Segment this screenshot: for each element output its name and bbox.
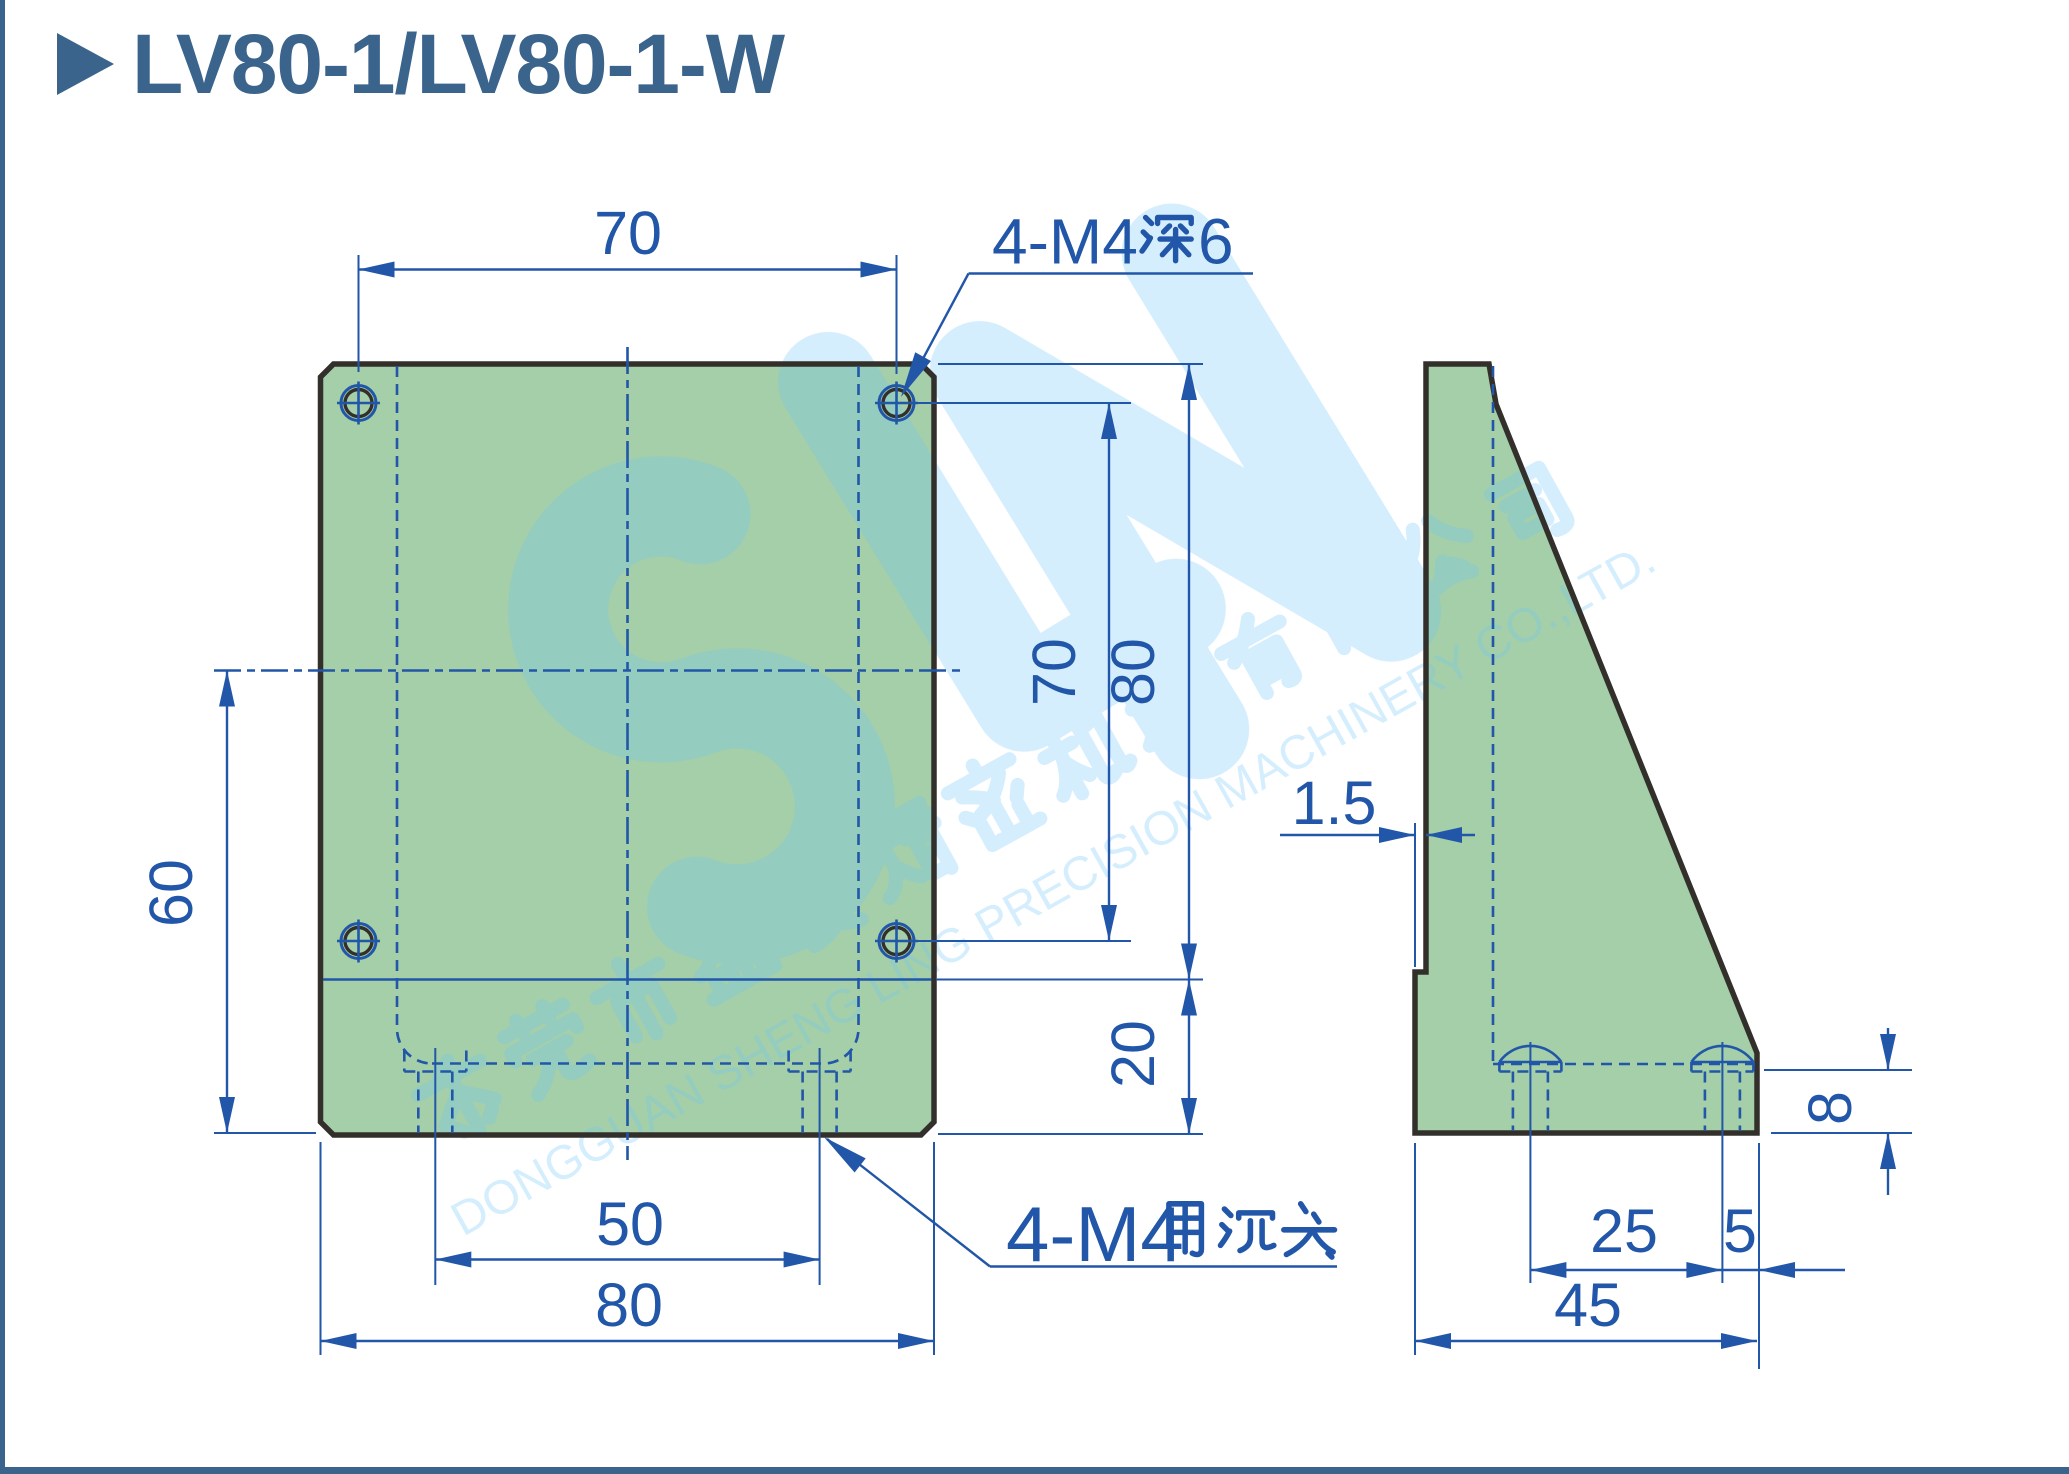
svg-text:4-M4: 4-M4 — [992, 206, 1138, 278]
svg-text:80: 80 — [595, 1271, 663, 1339]
svg-text:4-M4: 4-M4 — [1006, 1190, 1184, 1278]
svg-text:LV80-1/LV80-1-W: LV80-1/LV80-1-W — [132, 17, 786, 111]
svg-text:50: 50 — [596, 1190, 664, 1258]
svg-text:70: 70 — [594, 199, 662, 267]
svg-text:60: 60 — [137, 859, 205, 927]
svg-text:25: 25 — [1590, 1197, 1658, 1265]
svg-text:20: 20 — [1099, 1020, 1167, 1088]
svg-text:8: 8 — [1796, 1091, 1864, 1125]
svg-text:80: 80 — [1099, 638, 1167, 706]
svg-text:6: 6 — [1198, 206, 1234, 278]
svg-text:5: 5 — [1723, 1197, 1757, 1265]
svg-text:45: 45 — [1554, 1271, 1622, 1339]
svg-text:70: 70 — [1020, 638, 1088, 706]
svg-text:1.5: 1.5 — [1292, 769, 1377, 837]
